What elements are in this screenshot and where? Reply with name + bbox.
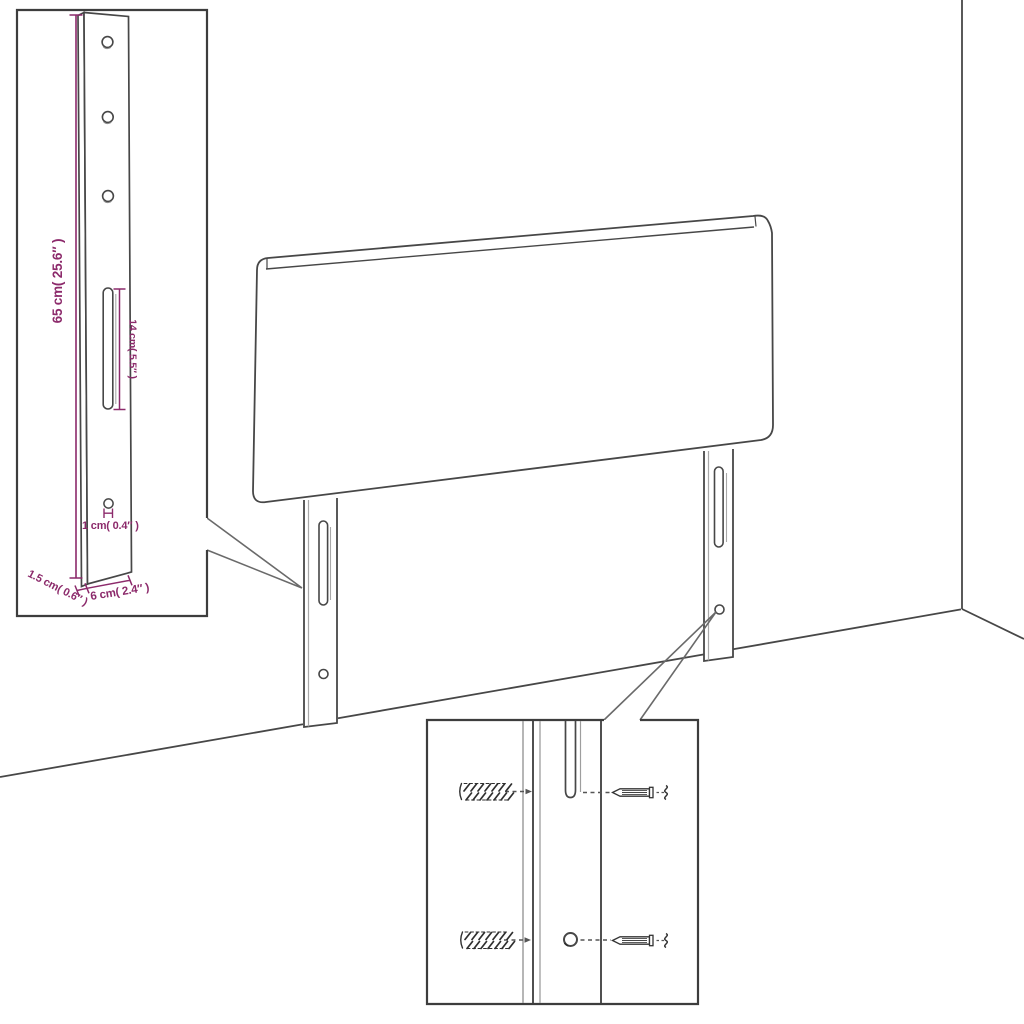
headboard-right-leg [704,449,733,661]
bracket-hole-2 [102,112,113,123]
bracket-drawing [78,13,132,587]
right-leg-slot [715,467,724,547]
headboard-left-leg [304,498,337,727]
dimension-hole-label: 1 cm( 0.4″ ) [82,520,139,532]
bracket-slot [103,288,113,409]
left-leg-hole [319,670,328,679]
inset-box-border [427,720,698,1004]
bracket-small-hole [104,499,113,508]
product-dimension-diagram: 65 cm( 25.6″ ) 14 cm( 5.5″ ) 1 cm( 0.4″ … [0,0,1024,1024]
floor-line-right [962,609,1024,639]
detail-inset-bracket: 65 cm( 25.6″ ) 14 cm( 5.5″ ) 1 cm( 0.4″ … [17,10,207,616]
left-leg-slot [319,521,328,605]
callout-lines-right-leg [604,612,716,720]
headboard-panel [253,216,773,503]
detail-inset-screws [427,720,698,1004]
bracket-hole-3 [103,191,114,202]
dimension-height-label: 65 cm( 25.6″ ) [50,239,65,324]
bracket-hole-1 [102,37,113,48]
callout-lines-left-leg [207,518,302,588]
dimension-slot-label: 14 cm( 5.5″ ) [127,319,139,379]
